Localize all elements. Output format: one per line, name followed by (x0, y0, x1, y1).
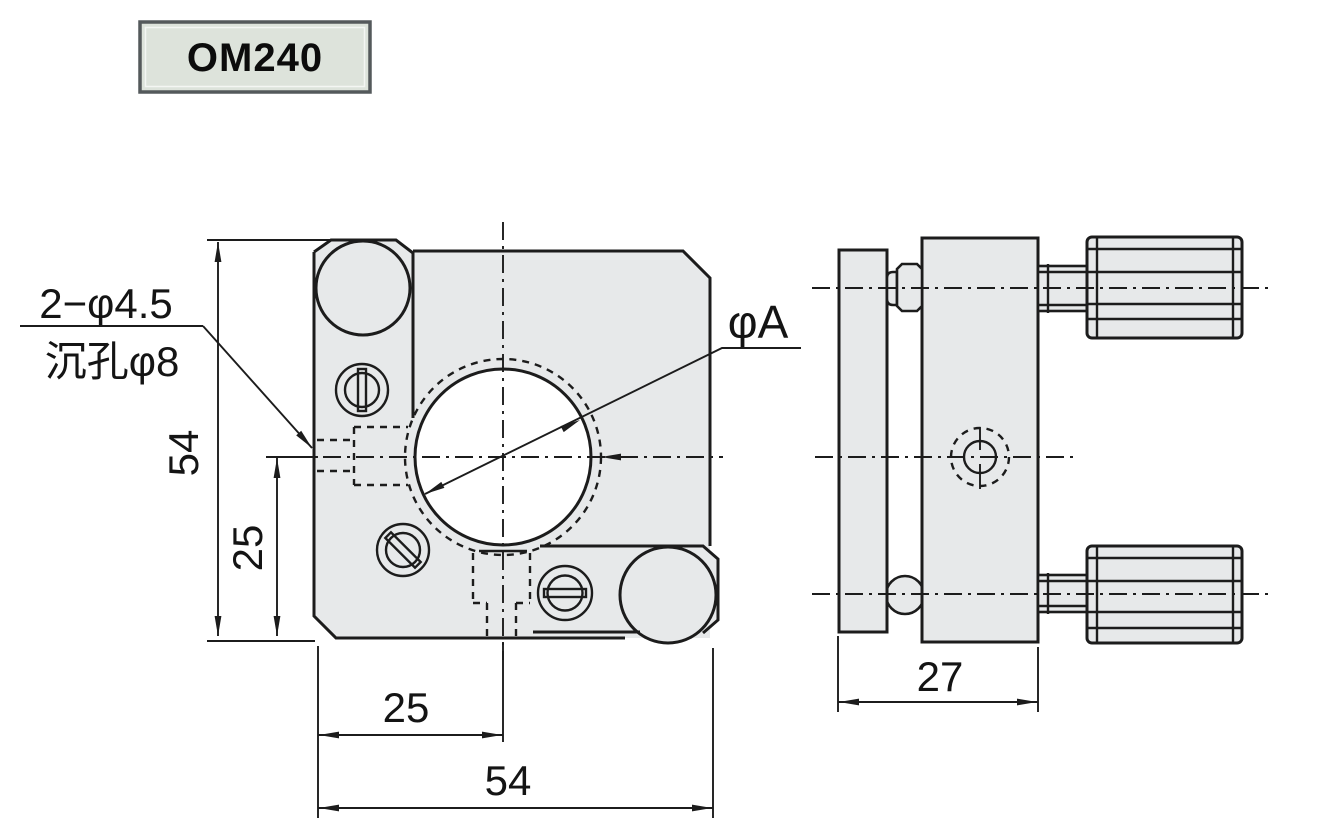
model-label: OM240 (187, 36, 323, 80)
dim-54-bottom: 54 (318, 648, 713, 818)
dim-depth-27-text: 27 (917, 653, 964, 700)
counterbore-note-line2: 沉孔φ8 (45, 338, 180, 385)
aperture-label-text: φA (728, 296, 789, 348)
note-leader-arrowhead (296, 431, 312, 448)
side-front-plate (839, 250, 887, 632)
counterbore-note-line1: 2−φ4.5 (39, 280, 173, 327)
front-view: 54 25 25 54 2−φ4.5 沉孔φ8 (20, 222, 801, 818)
dim-25-vertical-text: 25 (224, 525, 271, 572)
drawing-page: OM240 (0, 0, 1333, 839)
side-view: 27 (812, 237, 1268, 712)
dim-25-vertical: 25 (224, 457, 280, 636)
front-top-left-knob (316, 241, 410, 335)
front-bottom-right-knob (620, 547, 716, 643)
dim-54-bottom-text: 54 (485, 757, 532, 804)
drawing-canvas: OM240 (0, 0, 1333, 839)
counterbore-note: 2−φ4.5 沉孔φ8 (20, 280, 312, 448)
dim-25-bottom: 25 (318, 643, 503, 818)
model-label-box: OM240 (140, 22, 370, 92)
dim-height-54-text: 54 (160, 430, 207, 477)
side-ball (886, 576, 924, 614)
dim-depth-27: 27 (838, 636, 1038, 712)
dim-25-bottom-text: 25 (383, 684, 430, 731)
